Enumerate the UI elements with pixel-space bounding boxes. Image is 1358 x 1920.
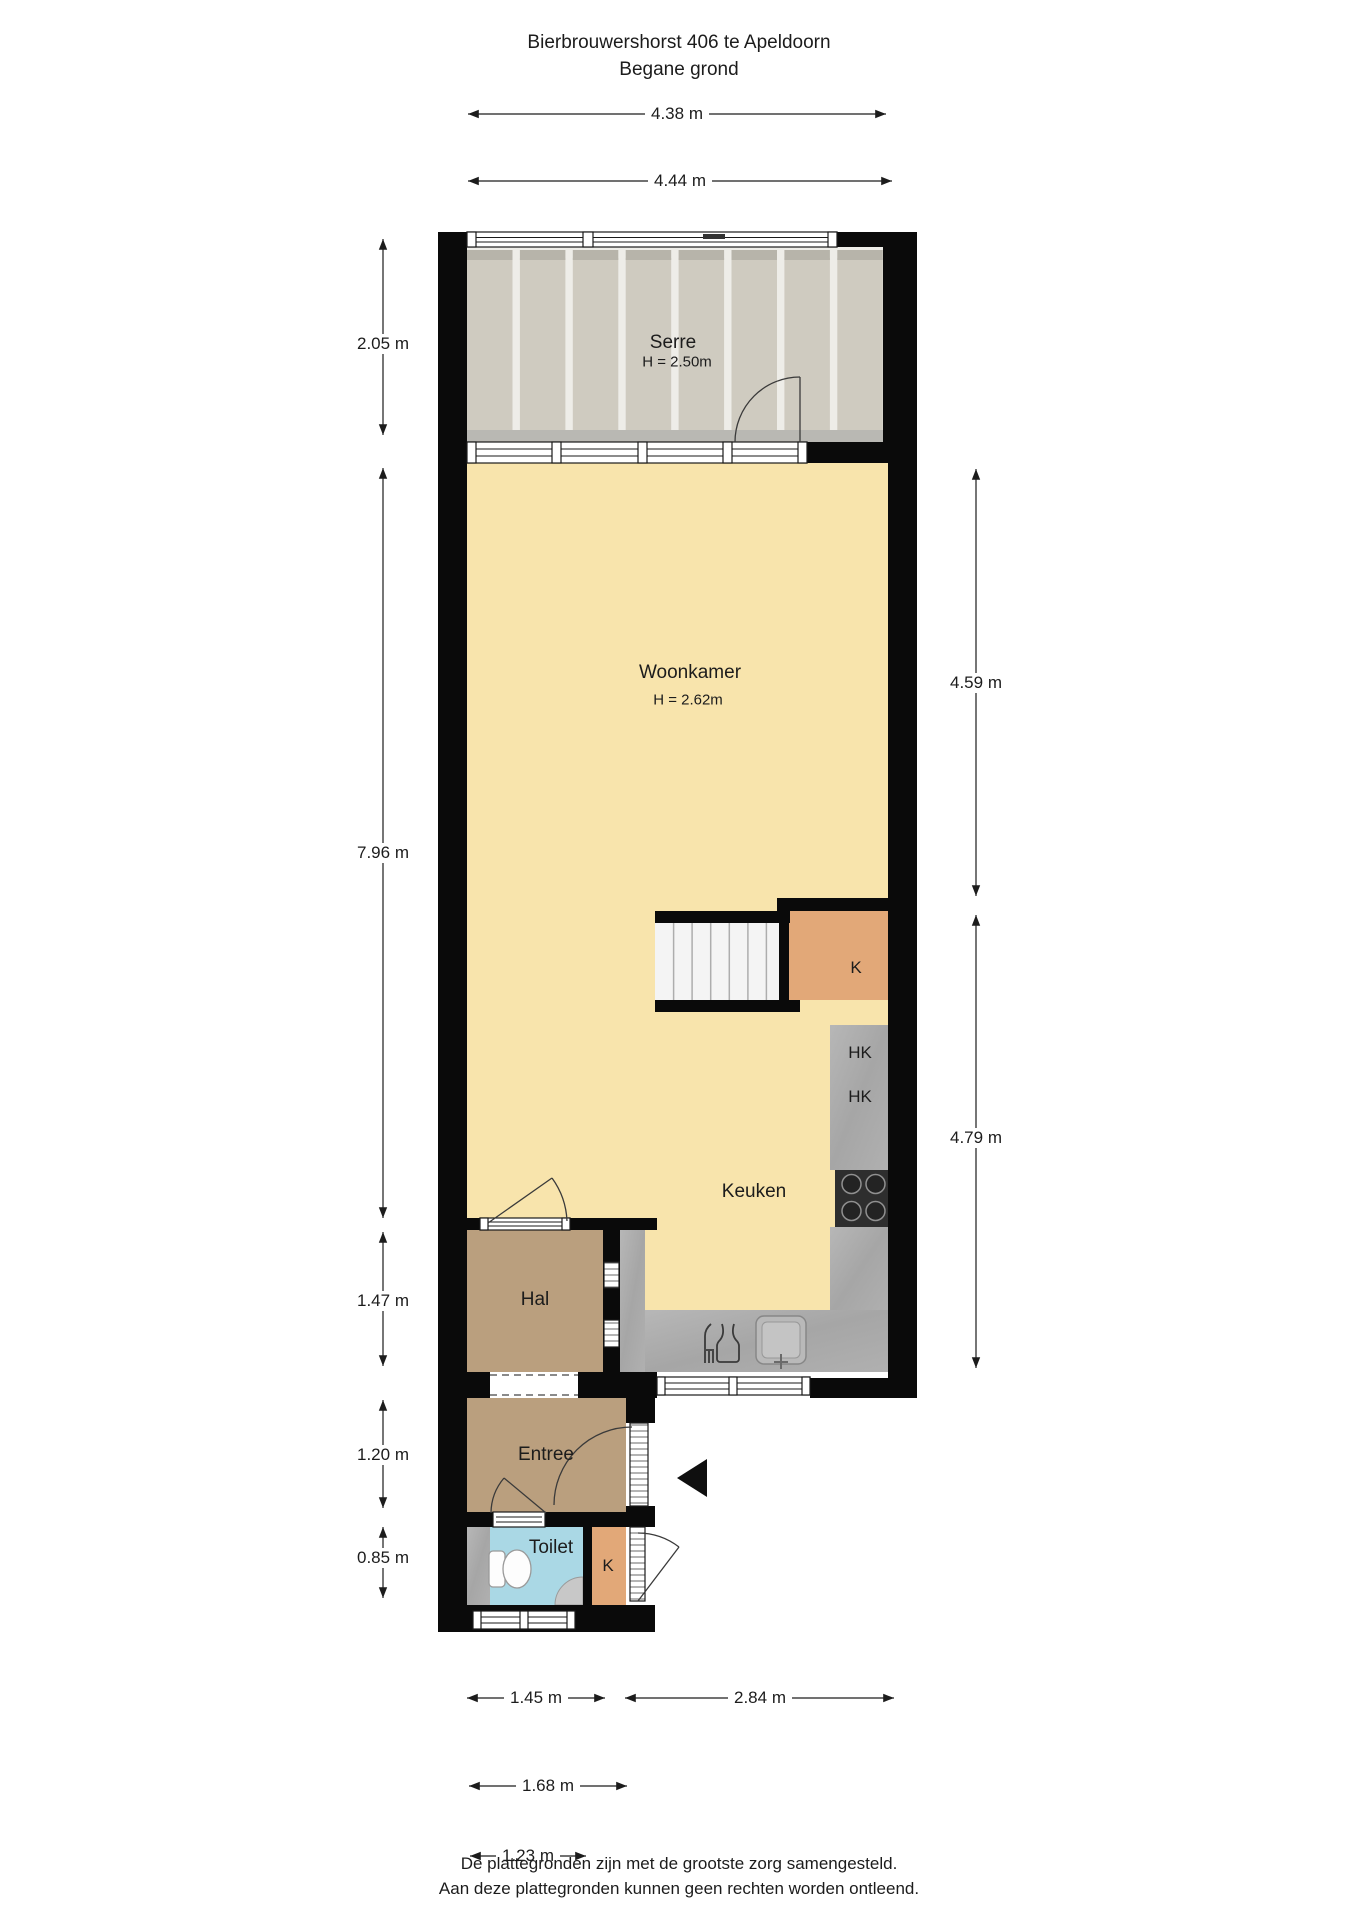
dim-top-woonkamer: 4.44 m [648, 171, 712, 191]
room-label-woonkamer: Woonkamer [639, 662, 741, 684]
cooktop [835, 1170, 888, 1227]
closet-label-k-entry: K [602, 1556, 613, 1576]
room-height-woonkamer: H = 2.62m [653, 692, 723, 709]
room-label-toilet: Toilet [529, 1537, 573, 1559]
room-label-keuken: Keuken [722, 1181, 786, 1203]
closet-k-stairs-floor [789, 911, 888, 1000]
dim-left-entree: 1.20 m [351, 1445, 415, 1465]
footer-line-2: Aan deze plattegronden kunnen geen recht… [439, 1879, 919, 1899]
plan-title: Bierbrouwershorst 406 te Apeldoorn [527, 32, 830, 54]
entrance-arrow-icon [677, 1459, 707, 1497]
dim-top-serre: 4.38 m [645, 104, 709, 124]
cupboard-label-hk-2: HK [848, 1087, 872, 1107]
dim-left-hal: 1.47 m [351, 1291, 415, 1311]
dim-right-keuken: 4.79 m [944, 1128, 1008, 1148]
room-height-serre: H = 2.50m [642, 354, 712, 371]
plan-subtitle: Begane grond [619, 59, 738, 81]
floorplan-page: Bierbrouwershorst 406 te Apeldoorn Began… [0, 0, 1358, 1920]
footer-line-1: De plattegronden zijn met de grootste zo… [461, 1854, 898, 1874]
dim-left-serre: 2.05 m [351, 334, 415, 354]
floorplan-drawing [0, 0, 1358, 1920]
serre-sill-band [467, 430, 883, 442]
dim-bottom-keuken: 2.84 m [728, 1688, 792, 1708]
kitchen-sink [756, 1316, 806, 1369]
dim-left-toilet: 0.85 m [351, 1548, 415, 1568]
dim-bottom-entree: 1.68 m [516, 1776, 580, 1796]
open-passage [490, 1372, 578, 1398]
room-label-serre: Serre [650, 332, 696, 354]
dim-right-woonkamer: 4.59 m [944, 673, 1008, 693]
room-label-hal: Hal [521, 1289, 550, 1311]
dim-left-woonkamer: 7.96 m [351, 843, 415, 863]
front-door [630, 1423, 648, 1506]
closet-label-k-stairs: K [850, 958, 861, 978]
staircase [655, 923, 785, 1000]
room-label-entree: Entree [518, 1444, 574, 1466]
hal-glass-panel-2 [604, 1320, 619, 1347]
cupboard-label-hk-1: HK [848, 1043, 872, 1063]
dim-bottom-toilet: 1.45 m [504, 1688, 568, 1708]
hal-glass-panel-1 [604, 1262, 619, 1288]
closet-k-door [630, 1527, 645, 1601]
